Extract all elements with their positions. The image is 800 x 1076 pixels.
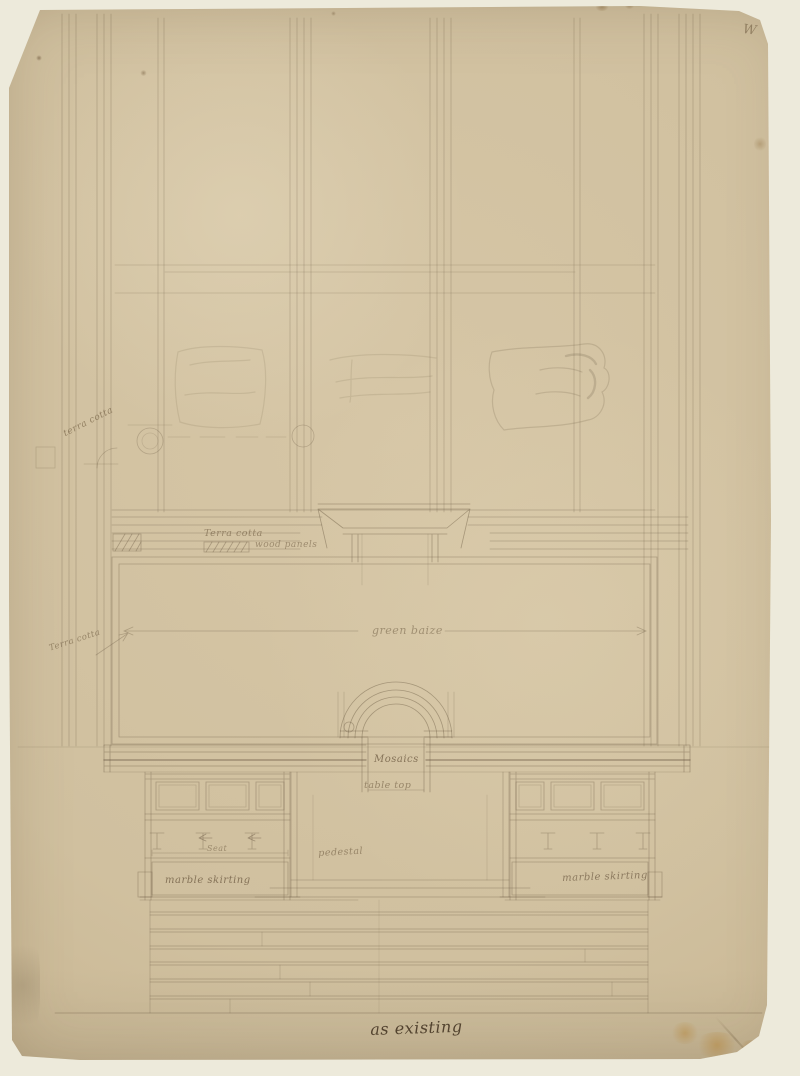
label-marble-skirting-left: marble skirting (165, 875, 251, 886)
panel-sketch-middle (330, 355, 436, 403)
label-green-baize: green baize (372, 624, 443, 637)
pencil-drawing (0, 0, 800, 1076)
label-wood-panels: wood panels (255, 540, 317, 550)
entablature-lines (112, 510, 688, 549)
label-mosaics: Mosaics (374, 754, 419, 765)
steps (55, 900, 762, 1013)
pilaster-lines-right (644, 14, 700, 746)
canopy (318, 504, 470, 585)
label-as-existing: as existing (370, 1017, 463, 1039)
scan-backdrop: terra cotta Terra cotta wood panels gree… (0, 0, 800, 1076)
label-terra-cotta-band: Terra cotta (204, 528, 263, 539)
label-corner-mark: W (742, 22, 758, 39)
panel-sketch-right (489, 344, 609, 430)
drawing-sheet: terra cotta Terra cotta wood panels gree… (0, 0, 800, 1076)
label-seat: Seat (207, 844, 227, 853)
label-pedestal: pedestal (318, 846, 363, 859)
label-table-top: table top (364, 780, 411, 791)
baize-board (112, 557, 657, 744)
panel-sketch-left (175, 347, 265, 428)
